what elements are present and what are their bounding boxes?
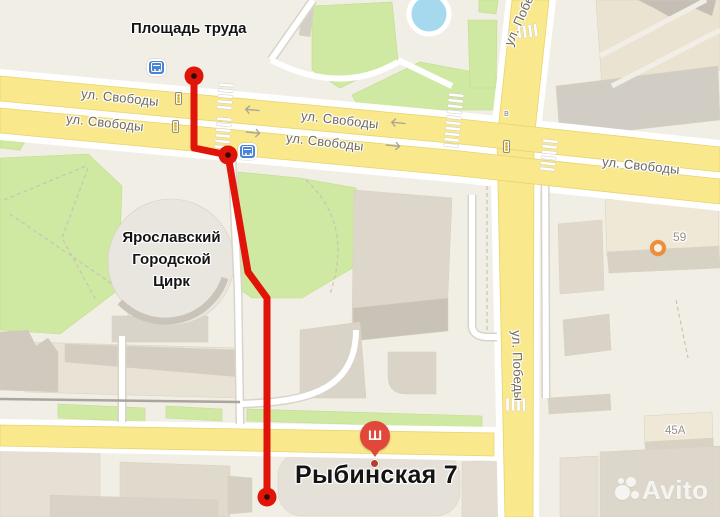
avito-wordmark: Avito [642, 475, 709, 506]
bus-stop-icon[interactable] [238, 143, 257, 160]
route-endpoint-circle [258, 488, 277, 507]
traffic-light-icon [175, 92, 182, 105]
organization-poi-icon[interactable] [650, 240, 666, 256]
bus-stop-icon[interactable] [147, 59, 166, 76]
marker-anchor-dot [370, 459, 379, 468]
route-waypoint-circle [219, 146, 238, 165]
bus-glyph-icon [242, 146, 253, 156]
avito-watermark: Avito [606, 472, 709, 508]
marker-glyph: Ш [360, 428, 390, 442]
pond [409, 0, 449, 34]
traffic-light-icon [172, 120, 179, 133]
bus-glyph-icon [151, 62, 162, 72]
traffic-light-icon [503, 140, 510, 153]
building-marker-icon[interactable]: Ш [360, 421, 390, 451]
map[interactable]: ул. Свободы ул. Свободы ул. Свободы ул. … [0, 0, 720, 517]
avito-logo-icon [606, 472, 642, 508]
route-endpoint-circle [185, 67, 204, 86]
circus-building [108, 199, 234, 325]
